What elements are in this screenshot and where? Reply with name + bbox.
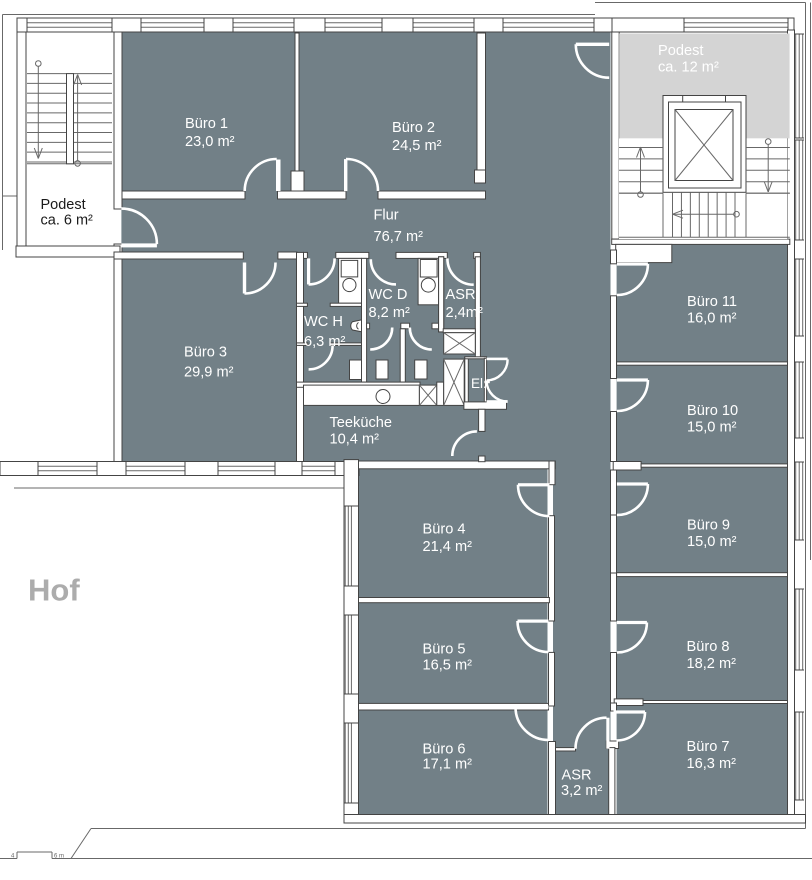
svg-text:16,5 m²: 16,5 m²: [423, 658, 473, 674]
svg-text:2,4m²: 2,4m²: [446, 305, 483, 321]
svg-text:Büro 1: Büro 1: [185, 116, 228, 132]
svg-text:23,0 m²: 23,0 m²: [185, 134, 235, 150]
svg-text:Büro 8: Büro 8: [687, 639, 730, 655]
svg-text:ca. 6 m²: ca. 6 m²: [41, 213, 94, 229]
svg-text:8,2 m²: 8,2 m²: [369, 305, 410, 321]
svg-text:15,0 m²: 15,0 m²: [687, 534, 737, 550]
svg-text:Podest: Podest: [658, 43, 703, 59]
svg-text:Podest: Podest: [41, 197, 86, 213]
svg-text:Büro 4: Büro 4: [423, 522, 466, 538]
svg-text:16,0 m²: 16,0 m²: [687, 311, 737, 327]
svg-text:Büro 9: Büro 9: [687, 518, 730, 534]
svg-text:El.: El.: [471, 376, 487, 391]
svg-text:ASR: ASR: [562, 768, 592, 784]
svg-text:76,7 m²: 76,7 m²: [374, 229, 424, 245]
svg-text:3,2 m²: 3,2 m²: [561, 783, 602, 799]
svg-text:Flur: Flur: [374, 208, 399, 224]
svg-text:15,0 m²: 15,0 m²: [687, 420, 737, 436]
svg-text:Büro 6: Büro 6: [423, 742, 466, 758]
svg-text:10,4 m²: 10,4 m²: [330, 432, 380, 448]
svg-text:ca. 12 m²: ca. 12 m²: [658, 60, 719, 76]
svg-text:21,4 m²: 21,4 m²: [423, 539, 473, 555]
svg-text:17,1 m²: 17,1 m²: [423, 757, 473, 773]
svg-text:WC D: WC D: [369, 287, 408, 303]
svg-text:ASR: ASR: [446, 287, 476, 303]
svg-text:Büro 3: Büro 3: [184, 345, 227, 361]
svg-text:Teeküche: Teeküche: [330, 415, 392, 431]
svg-text:24,5 m²: 24,5 m²: [392, 138, 442, 154]
svg-text:Büro 5: Büro 5: [423, 642, 466, 658]
svg-text:Büro 10: Büro 10: [687, 403, 738, 419]
svg-text:Büro 11: Büro 11: [687, 294, 737, 310]
svg-text:WC H: WC H: [304, 314, 343, 330]
svg-text:29,9 m²: 29,9 m²: [184, 365, 234, 381]
svg-text:6 m: 6 m: [54, 854, 64, 860]
svg-text:16,3 m²: 16,3 m²: [687, 756, 737, 772]
svg-text:18,2 m²: 18,2 m²: [687, 656, 737, 672]
svg-text:Büro 7: Büro 7: [687, 739, 730, 755]
svg-text:Büro 2: Büro 2: [392, 120, 435, 136]
svg-text:6,3 m²: 6,3 m²: [304, 334, 345, 350]
svg-text:Hof: Hof: [28, 573, 80, 608]
